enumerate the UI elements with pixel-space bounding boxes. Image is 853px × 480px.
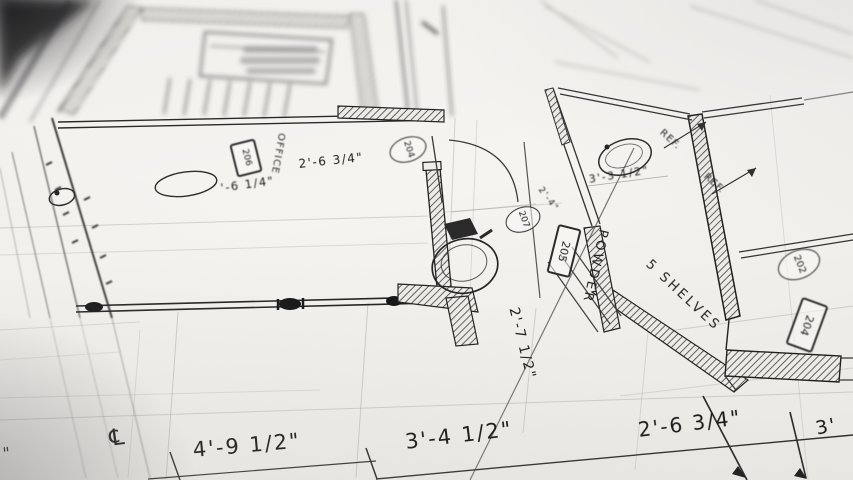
sink-room-walls <box>545 88 692 226</box>
left-edge-inch-tick: " <box>2 445 11 462</box>
tag-204-box-text: 204 <box>798 313 816 336</box>
tag-205-text: 205 <box>556 239 572 262</box>
door-swing-arc <box>449 140 518 202</box>
blueprint-photo: OFFICE POWDER 5 SHELVES REF. REF. 206 20… <box>0 0 853 480</box>
illegible-note-smudge <box>240 46 320 74</box>
tag-circle-202-text: 202 <box>791 254 807 275</box>
centerline-symbol: ℄ <box>108 426 126 451</box>
stairs-lines-upper <box>164 78 290 117</box>
left-wall-lines <box>0 118 150 478</box>
tiny-annotation-specks <box>46 162 112 284</box>
top-blurred-region <box>0 0 853 122</box>
tag-circle-204-text: 204 <box>401 140 415 159</box>
bottom-wall <box>76 296 432 312</box>
desk-oval-icon <box>154 168 219 200</box>
dimension-bottom-4: 3' <box>814 416 839 439</box>
tag-206-text: 206 <box>240 149 253 168</box>
tag-circle-207-text: 207 <box>516 210 530 229</box>
